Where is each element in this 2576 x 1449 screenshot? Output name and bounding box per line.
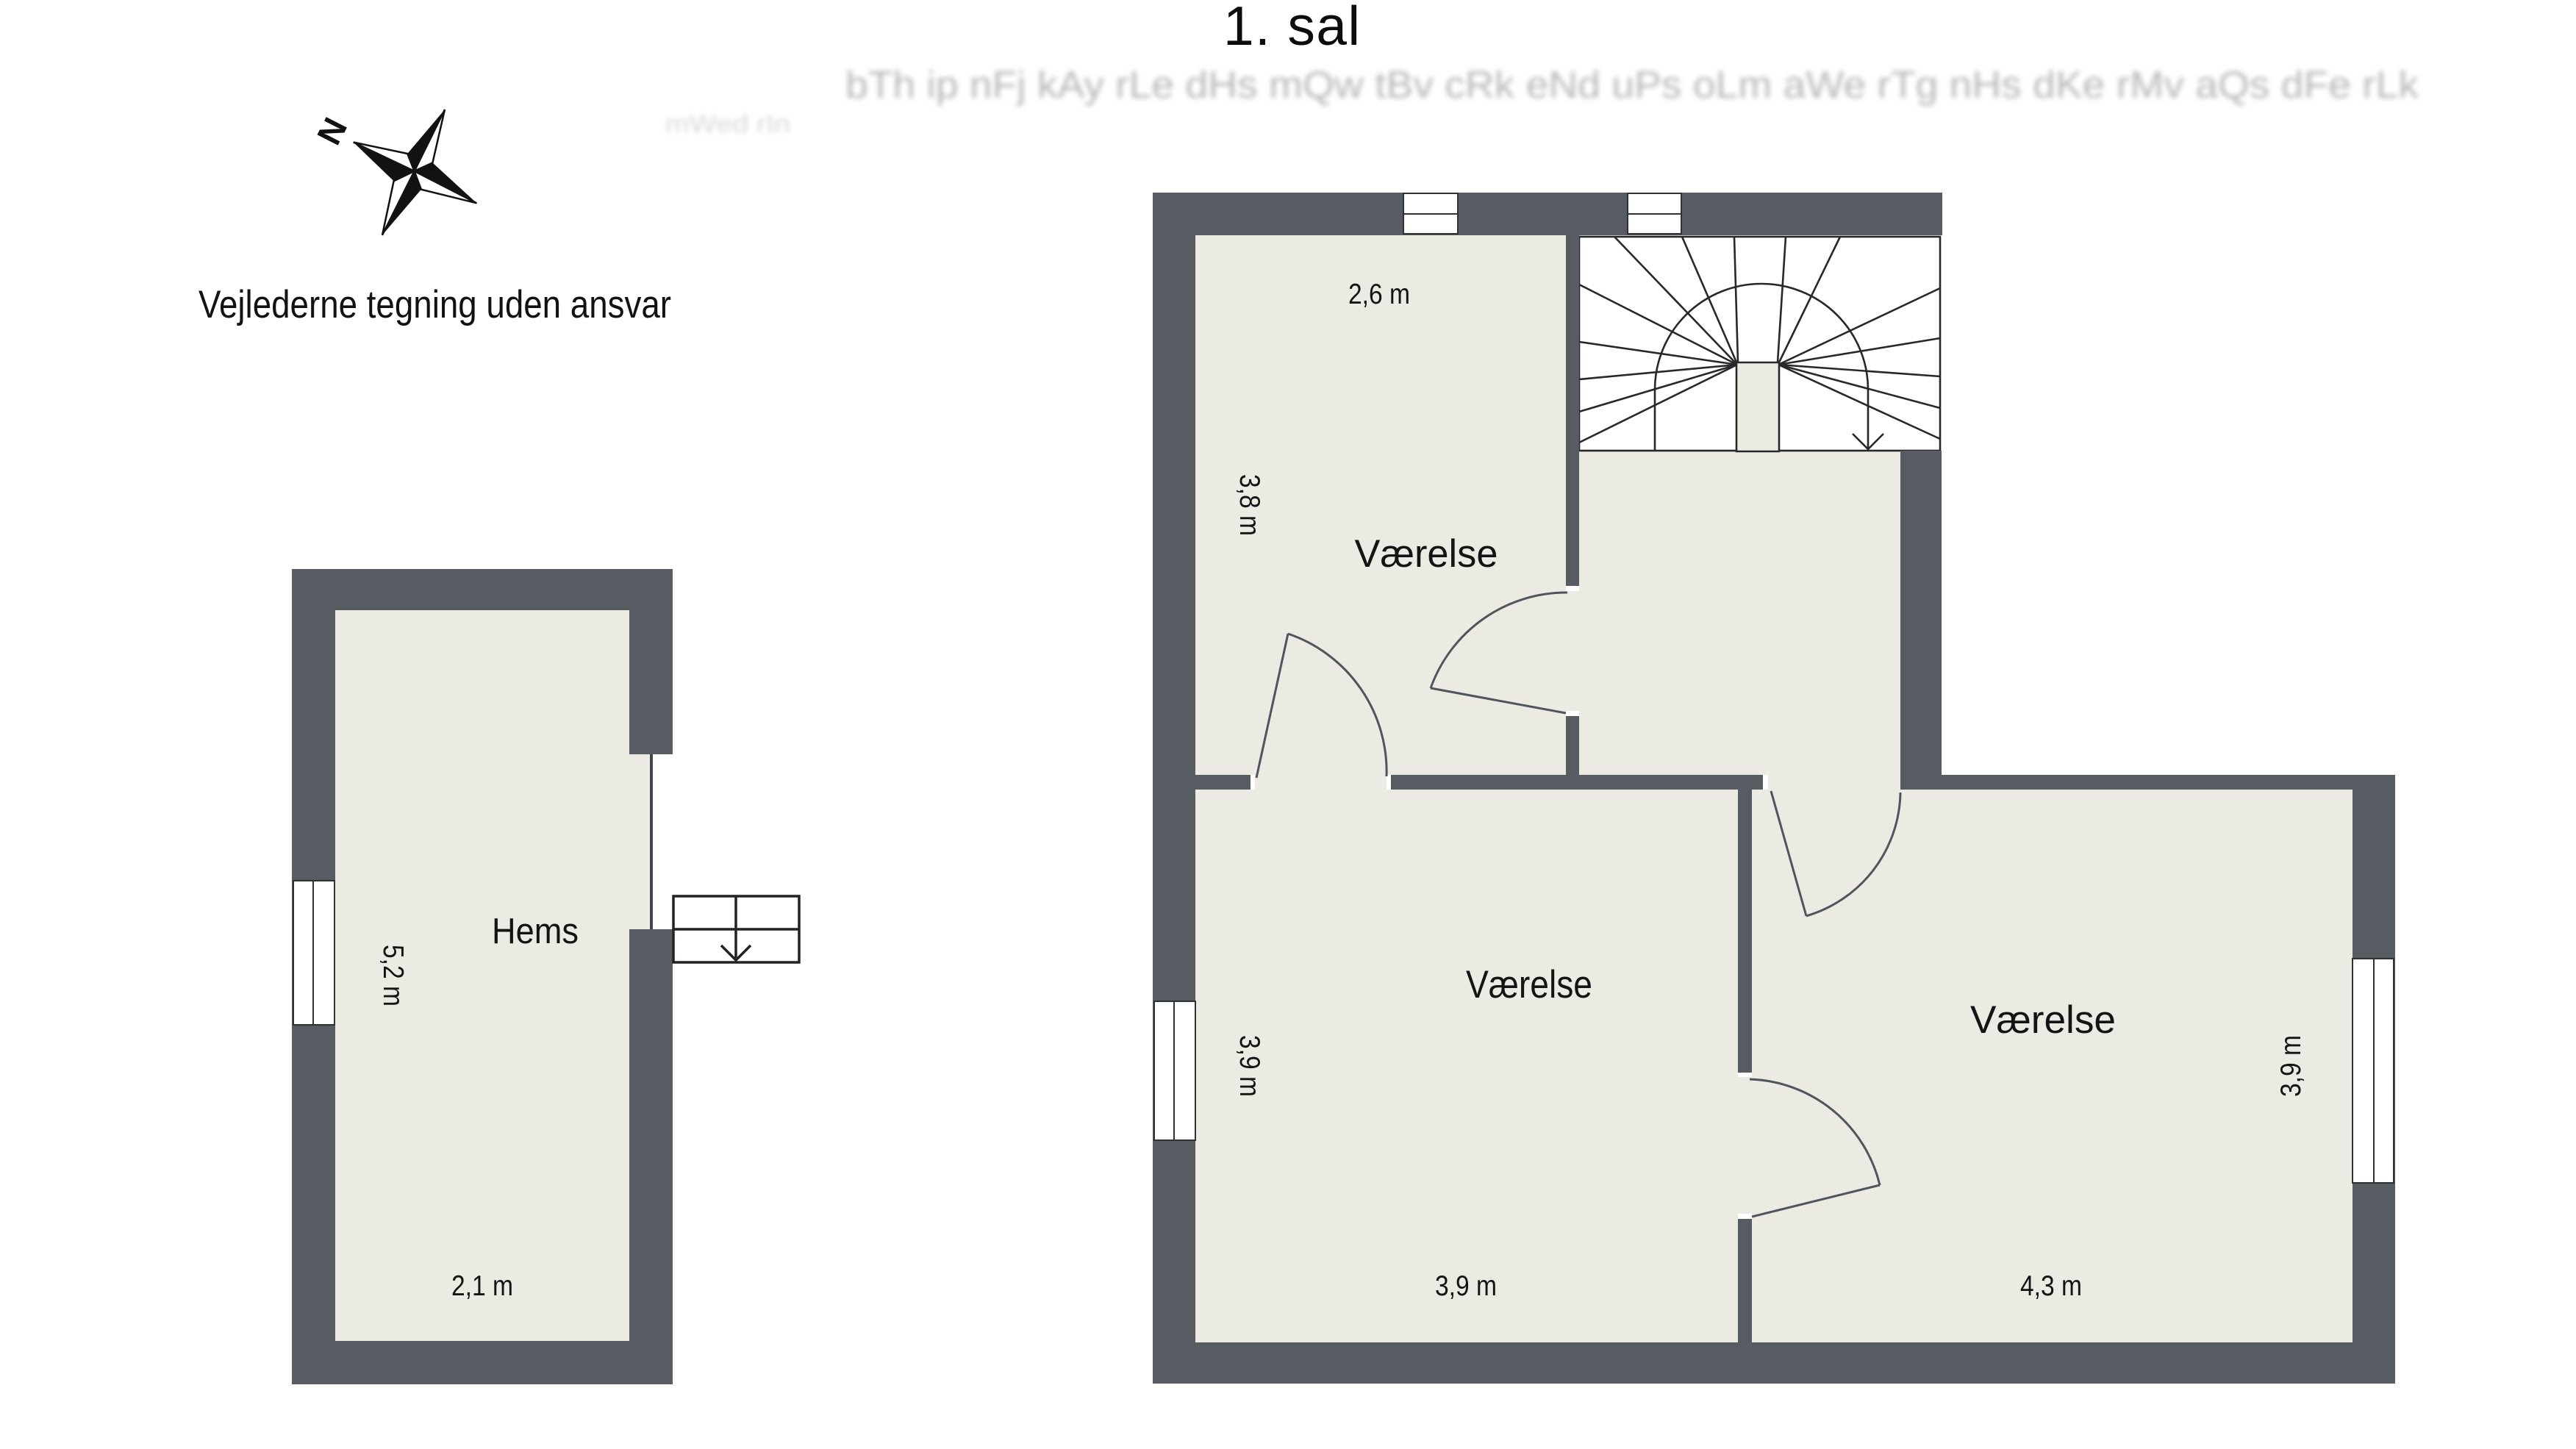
- svg-text:3,8 m: 3,8 m: [1234, 474, 1265, 536]
- svg-text:1. sal: 1. sal: [1223, 0, 1360, 57]
- svg-text:Vejlederne tegning uden ansvar: Vejlederne tegning uden ansvar: [198, 283, 671, 326]
- svg-text:4,3 m: 4,3 m: [2020, 1270, 2082, 1302]
- svg-text:Værelse: Værelse: [1355, 532, 1498, 576]
- svg-text:bTh ip nFj kAy rLe dHs mQw tBv: bTh ip nFj kAy rLe dHs mQw tBv cRk eNd u…: [845, 64, 2419, 107]
- svg-text:mWed rIn: mWed rIn: [665, 110, 790, 138]
- svg-text:3,9 m: 3,9 m: [1435, 1270, 1497, 1302]
- svg-text:2,6 m: 2,6 m: [1348, 279, 1410, 310]
- svg-text:5,2 m: 5,2 m: [377, 945, 409, 1006]
- svg-text:Værelse: Værelse: [1970, 998, 2116, 1042]
- svg-text:Værelse: Værelse: [1466, 963, 1592, 1006]
- svg-text:3,9 m: 3,9 m: [2275, 1035, 2307, 1097]
- svg-text:3,9 m: 3,9 m: [1234, 1035, 1265, 1097]
- svg-text:2,1 m: 2,1 m: [451, 1270, 513, 1302]
- svg-text:Hems: Hems: [492, 912, 579, 951]
